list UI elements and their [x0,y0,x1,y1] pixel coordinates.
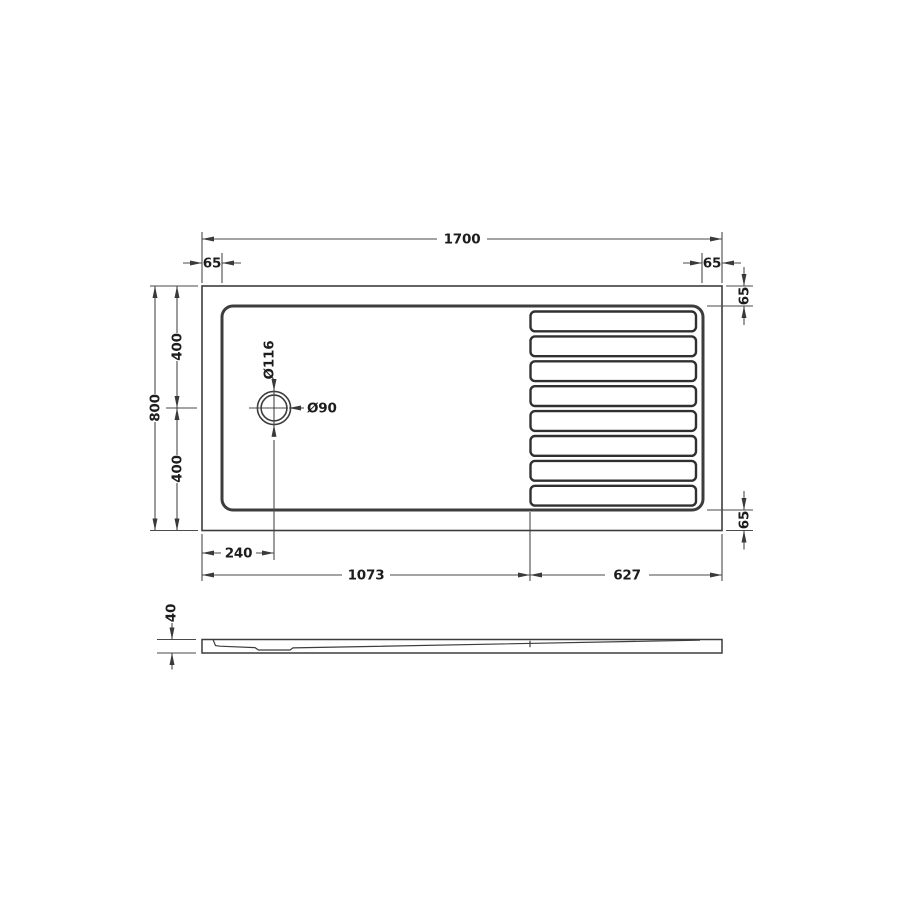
drawing-sheet: 1700 65 65 65 65 800 400 400 Ø116 [0,0,900,900]
anti-slip-slat [531,411,697,431]
anti-slip-slat [531,461,697,481]
dim-depth-upper: 400 [170,333,186,361]
dim-right-inset: 65 [703,256,721,272]
anti-slip-slat [531,361,697,381]
anti-slip-slat [531,386,697,406]
top-view [202,286,722,531]
drain-outer-diameter-label: Ø116 [262,341,278,380]
anti-slip-slat-group [531,312,697,506]
side-profile-view: 40 [157,604,722,670]
dim-right-bottom-inset: 65 [737,511,753,529]
dim-right-top-inset: 65 [737,287,753,305]
profile-basin-floor [213,640,700,651]
anti-slip-slat [531,336,697,356]
technical-drawing: 1700 65 65 65 65 800 400 400 Ø116 [0,0,900,900]
dim-depth-lower: 400 [170,455,186,483]
anti-slip-slat [531,312,697,332]
dim-left-inset: 65 [203,256,221,272]
dim-drain-offset: 240 [225,546,253,562]
dim-thickness: 40 [164,604,180,622]
anti-slip-slat [531,436,697,456]
dim-ridged-zone: 627 [613,568,641,584]
drain-inner-diameter-label: Ø90 [307,401,337,417]
dim-flat-zone: 1073 [348,568,385,584]
anti-slip-slat [531,486,697,506]
dim-overall-depth: 800 [148,394,164,422]
dim-overall-width: 1700 [444,232,481,248]
